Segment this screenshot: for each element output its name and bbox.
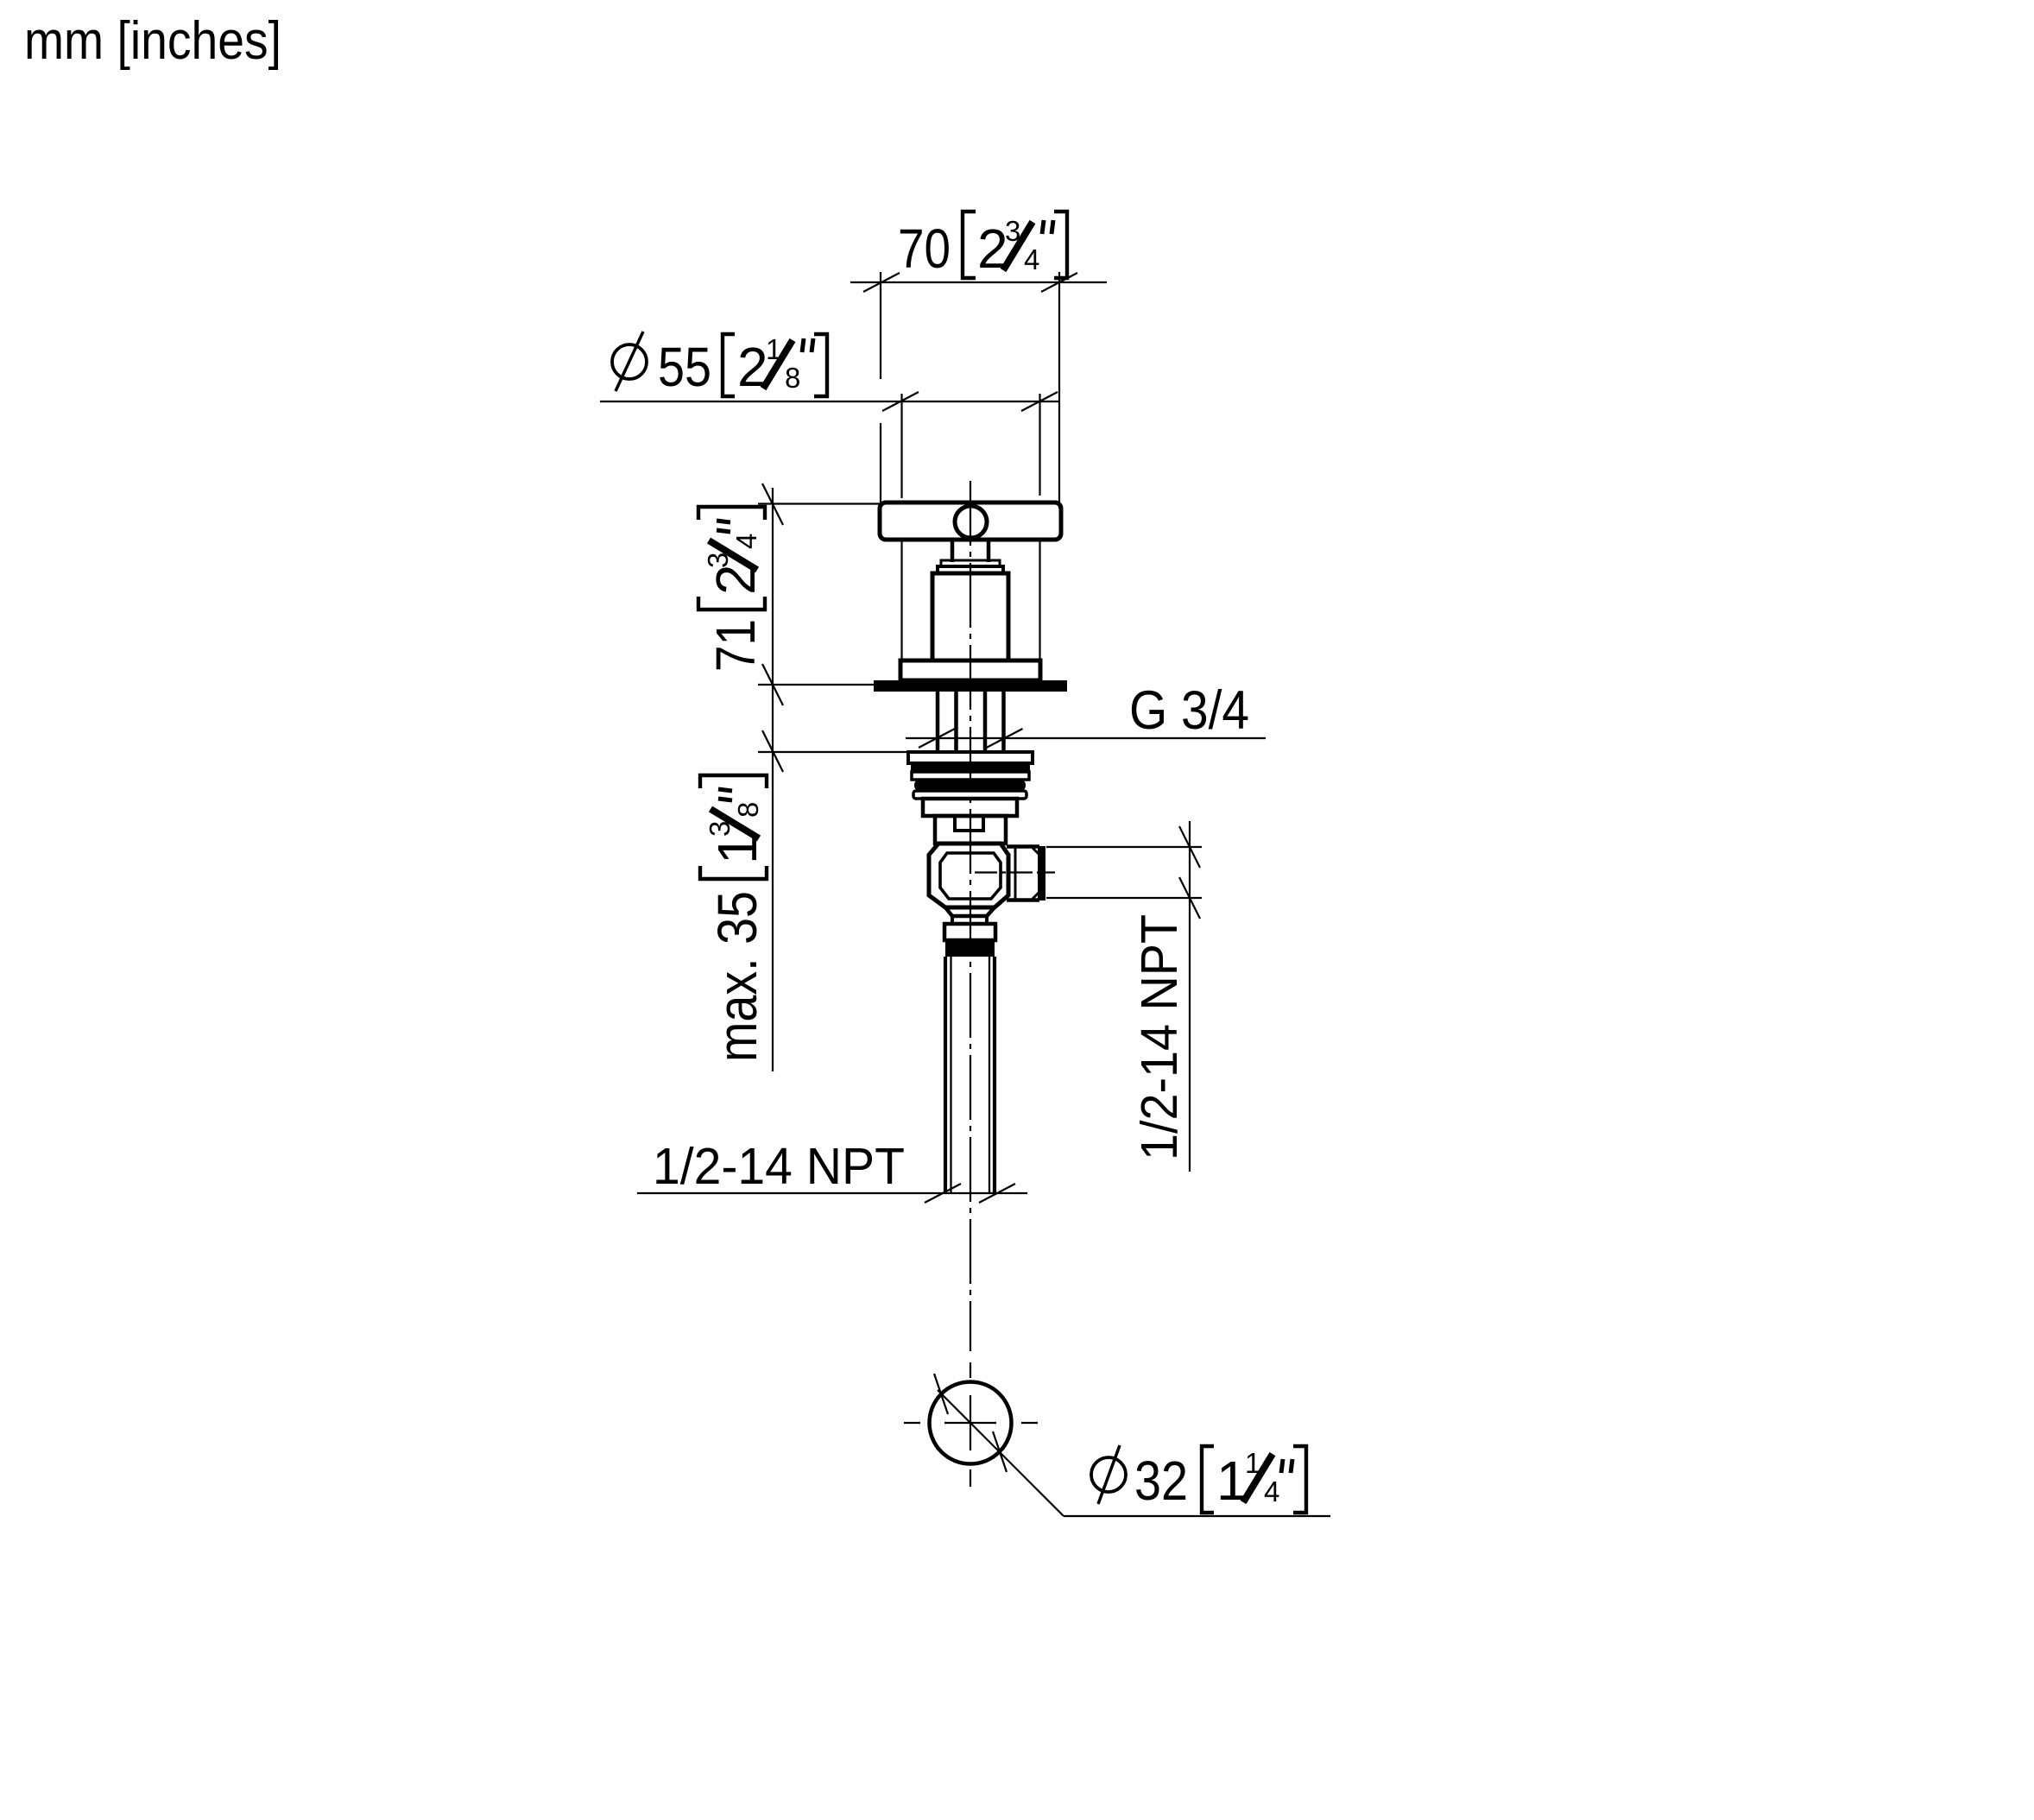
svg-text:4: 4	[1264, 1476, 1279, 1507]
svg-text:8: 8	[732, 802, 764, 818]
svg-text:G 3/4: G 3/4	[1129, 680, 1249, 741]
svg-text:1: 1	[706, 833, 768, 864]
svg-text:71: 71	[704, 619, 767, 672]
svg-text:mm [inches]: mm [inches]	[24, 11, 281, 71]
svg-text:1: 1	[1216, 1450, 1248, 1512]
svg-text:32: 32	[1134, 1450, 1188, 1512]
svg-text:55: 55	[658, 336, 711, 398]
svg-text:4: 4	[730, 534, 762, 549]
svg-text:1/2-14 NPT: 1/2-14 NPT	[1131, 914, 1188, 1160]
svg-text:70: 70	[898, 218, 951, 280]
svg-text:2: 2	[737, 336, 768, 398]
svg-text:8: 8	[785, 362, 800, 394]
svg-text:1/2-14 NPT: 1/2-14 NPT	[653, 1138, 905, 1195]
svg-text:4: 4	[1024, 243, 1039, 275]
svg-text:2: 2	[977, 218, 1008, 280]
svg-text:max. 35: max. 35	[706, 891, 768, 1062]
